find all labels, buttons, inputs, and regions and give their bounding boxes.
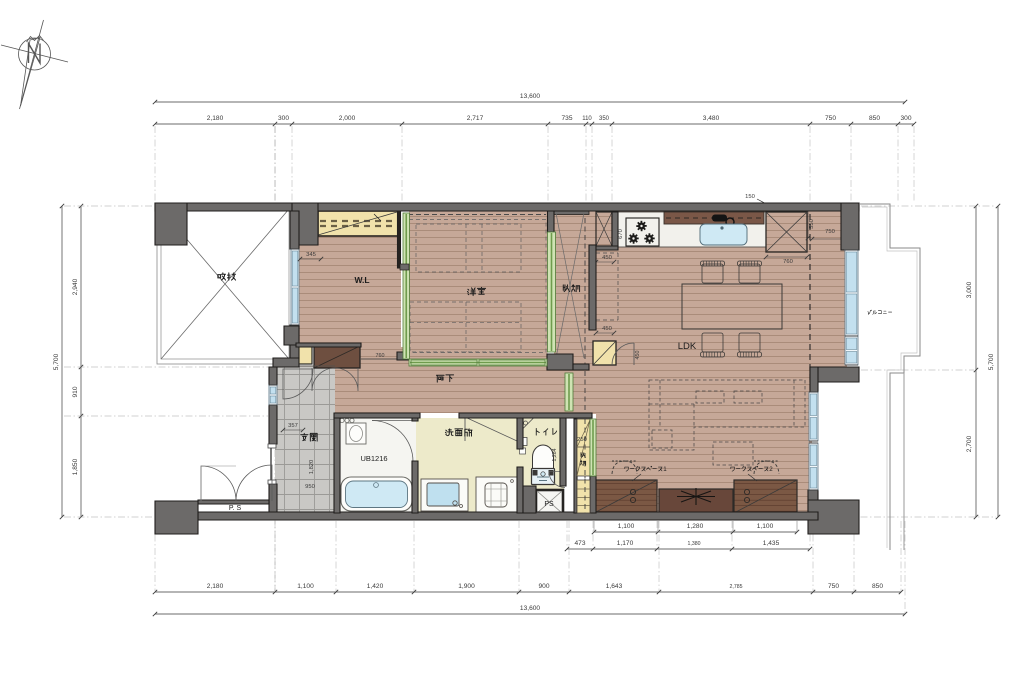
svg-text:2,180: 2,180 xyxy=(207,583,224,590)
svg-text:P. S: P. S xyxy=(229,505,242,512)
svg-text:1,380: 1,380 xyxy=(688,541,701,547)
svg-text:2,717: 2,717 xyxy=(467,115,484,122)
svg-text:750: 750 xyxy=(825,115,836,122)
svg-text:2,000: 2,000 xyxy=(339,115,356,122)
svg-text:1,850: 1,850 xyxy=(72,458,79,475)
svg-text:350: 350 xyxy=(599,116,610,122)
svg-text:450: 450 xyxy=(602,255,612,261)
svg-text:345: 345 xyxy=(306,252,316,258)
svg-text:1,435: 1,435 xyxy=(763,540,780,547)
svg-text:1,284: 1,284 xyxy=(552,448,558,461)
svg-text:2,940: 2,940 xyxy=(72,278,79,295)
svg-text:2,180: 2,180 xyxy=(207,115,224,122)
svg-text:910: 910 xyxy=(72,386,79,397)
svg-text:300: 300 xyxy=(278,115,289,122)
svg-text:850: 850 xyxy=(869,115,880,122)
svg-text:2,700: 2,700 xyxy=(966,435,973,452)
svg-text:3,480: 3,480 xyxy=(703,115,720,122)
svg-text:473: 473 xyxy=(574,540,585,547)
svg-text:110: 110 xyxy=(582,116,592,122)
svg-text:150: 150 xyxy=(745,194,755,200)
svg-text:1,100: 1,100 xyxy=(757,523,774,530)
svg-text:760: 760 xyxy=(783,259,793,265)
svg-text:300: 300 xyxy=(900,115,911,122)
svg-text:13,600: 13,600 xyxy=(520,605,541,612)
svg-text:450: 450 xyxy=(602,326,612,332)
svg-text:1,280: 1,280 xyxy=(687,523,704,530)
svg-text:760: 760 xyxy=(376,353,385,359)
svg-text:1,100: 1,100 xyxy=(297,583,314,590)
svg-text:13,600: 13,600 xyxy=(520,93,541,100)
svg-text:3,000: 3,000 xyxy=(966,281,973,298)
svg-text:1,643: 1,643 xyxy=(606,583,623,590)
svg-text:1,420: 1,420 xyxy=(367,583,384,590)
svg-text:5,700: 5,700 xyxy=(988,353,995,370)
svg-text:670: 670 xyxy=(618,229,624,239)
svg-text:2: 2 xyxy=(769,466,773,473)
svg-text:UB1216: UB1216 xyxy=(360,454,387,463)
svg-text:735: 735 xyxy=(561,115,572,122)
svg-text:900: 900 xyxy=(538,583,549,590)
svg-text:750: 750 xyxy=(825,229,835,235)
svg-text:1,820: 1,820 xyxy=(309,460,315,475)
svg-text:1: 1 xyxy=(663,466,667,473)
svg-text:450: 450 xyxy=(635,351,641,360)
svg-text:950: 950 xyxy=(305,484,315,490)
svg-text:PS: PS xyxy=(544,501,554,508)
svg-text:LDK: LDK xyxy=(678,341,697,352)
svg-text:250: 250 xyxy=(577,437,587,443)
svg-text:W.L: W.L xyxy=(354,275,369,285)
svg-text:750: 750 xyxy=(828,583,839,590)
svg-text:1,100: 1,100 xyxy=(618,523,635,530)
svg-text:1,170: 1,170 xyxy=(617,540,634,547)
svg-text:2,785: 2,785 xyxy=(730,584,743,590)
svg-text:357: 357 xyxy=(288,423,298,429)
svg-text:1,900: 1,900 xyxy=(458,583,475,590)
svg-text:850: 850 xyxy=(872,583,883,590)
svg-text:5,700: 5,700 xyxy=(53,353,60,370)
